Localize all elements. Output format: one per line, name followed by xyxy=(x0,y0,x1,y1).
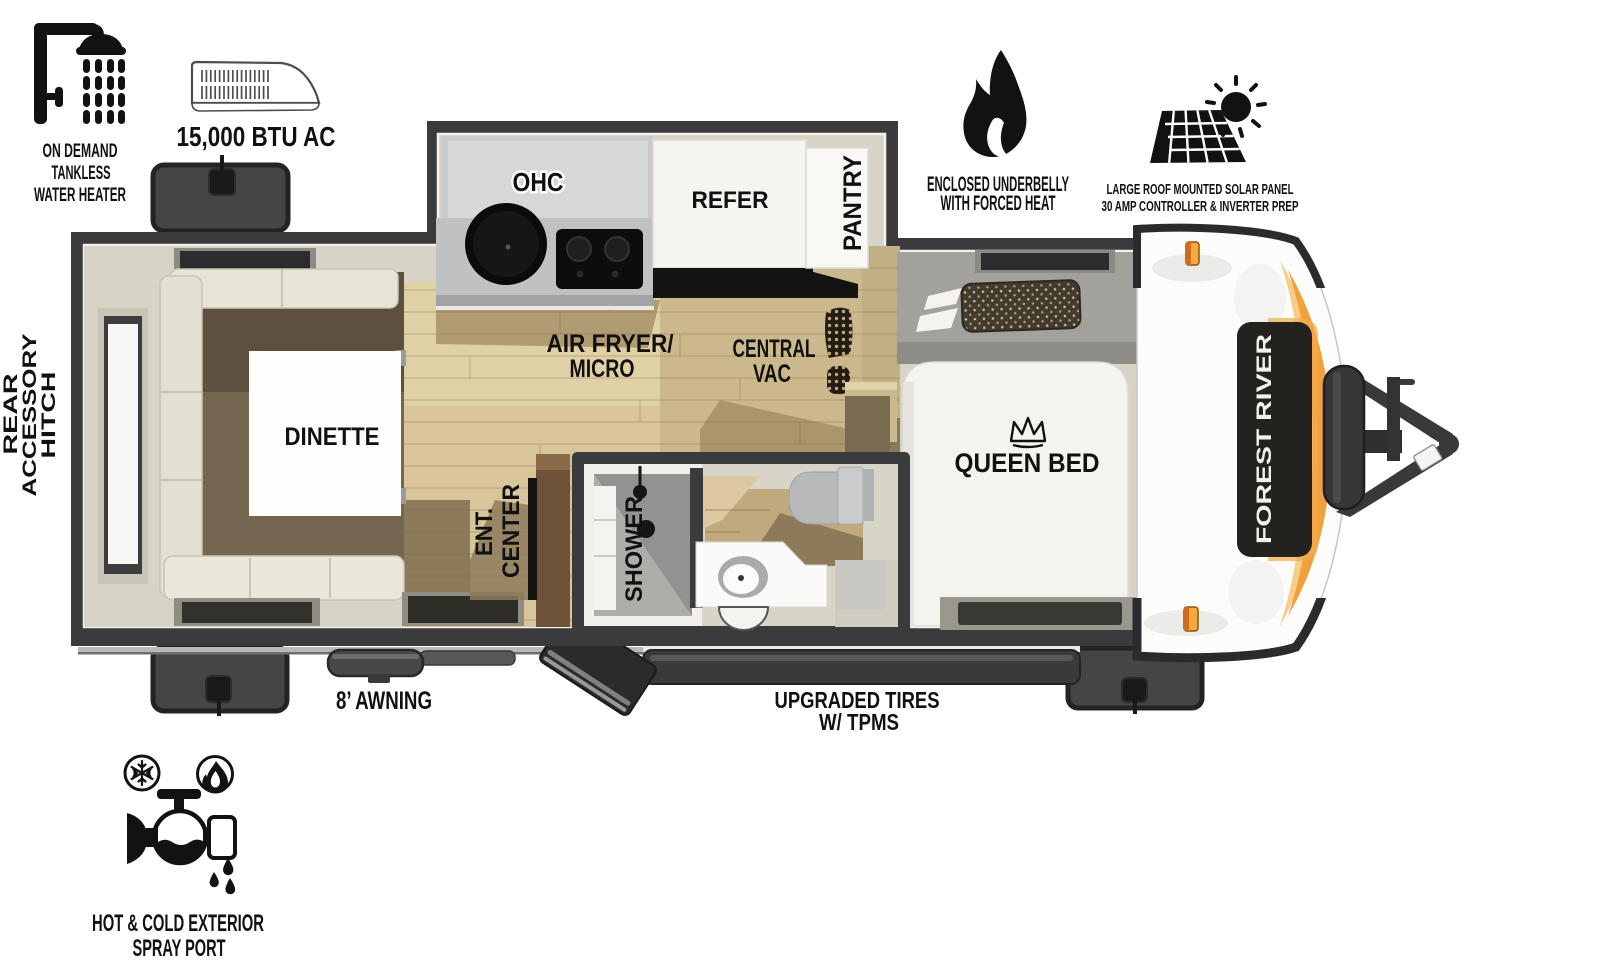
svg-text:W/ TPMS: W/ TPMS xyxy=(819,709,899,735)
svg-text:30 AMP CONTROLLER & INVERTER P: 30 AMP CONTROLLER & INVERTER PREP xyxy=(1102,199,1299,215)
svg-text:8’ AWNING: 8’ AWNING xyxy=(336,687,432,715)
svg-text:ENT.: ENT. xyxy=(471,508,498,556)
svg-text:OHC: OHC xyxy=(513,167,564,197)
svg-text:HITCH: HITCH xyxy=(39,372,60,459)
svg-text:HOT & COLD EXTERIOR: HOT & COLD EXTERIOR xyxy=(92,910,264,937)
svg-text:VAC: VAC xyxy=(753,360,791,388)
svg-text:FOREST RIVER: FOREST RIVER xyxy=(1253,334,1276,544)
svg-text:SHOWER: SHOWER xyxy=(621,496,648,602)
svg-text:MICRO: MICRO xyxy=(570,355,635,383)
svg-text:CENTER: CENTER xyxy=(498,484,525,578)
svg-text:PANTRY: PANTRY xyxy=(839,155,867,251)
svg-text:LARGE ROOF MOUNTED SOLAR PANEL: LARGE ROOF MOUNTED SOLAR PANEL xyxy=(1107,182,1294,198)
svg-text:CENTRAL: CENTRAL xyxy=(733,335,816,363)
svg-text:DINETTE: DINETTE xyxy=(285,423,380,451)
svg-text:SPRAY PORT: SPRAY PORT xyxy=(133,935,226,962)
svg-text:15,000 BTU AC: 15,000 BTU AC xyxy=(177,121,336,152)
svg-text:ACCESSORY: ACCESSORY xyxy=(20,333,41,496)
svg-text:ON DEMAND: ON DEMAND xyxy=(43,141,118,162)
svg-text:AIR FRYER/: AIR FRYER/ xyxy=(547,330,674,358)
svg-text:QUEEN BED: QUEEN BED xyxy=(955,448,1100,478)
svg-text:REFER: REFER xyxy=(692,187,769,214)
svg-text:TANKLESS: TANKLESS xyxy=(52,163,111,184)
svg-text:WATER HEATER: WATER HEATER xyxy=(34,185,126,206)
svg-text:REAR: REAR xyxy=(1,373,22,454)
svg-text:WITH FORCED HEAT: WITH FORCED HEAT xyxy=(941,192,1056,215)
